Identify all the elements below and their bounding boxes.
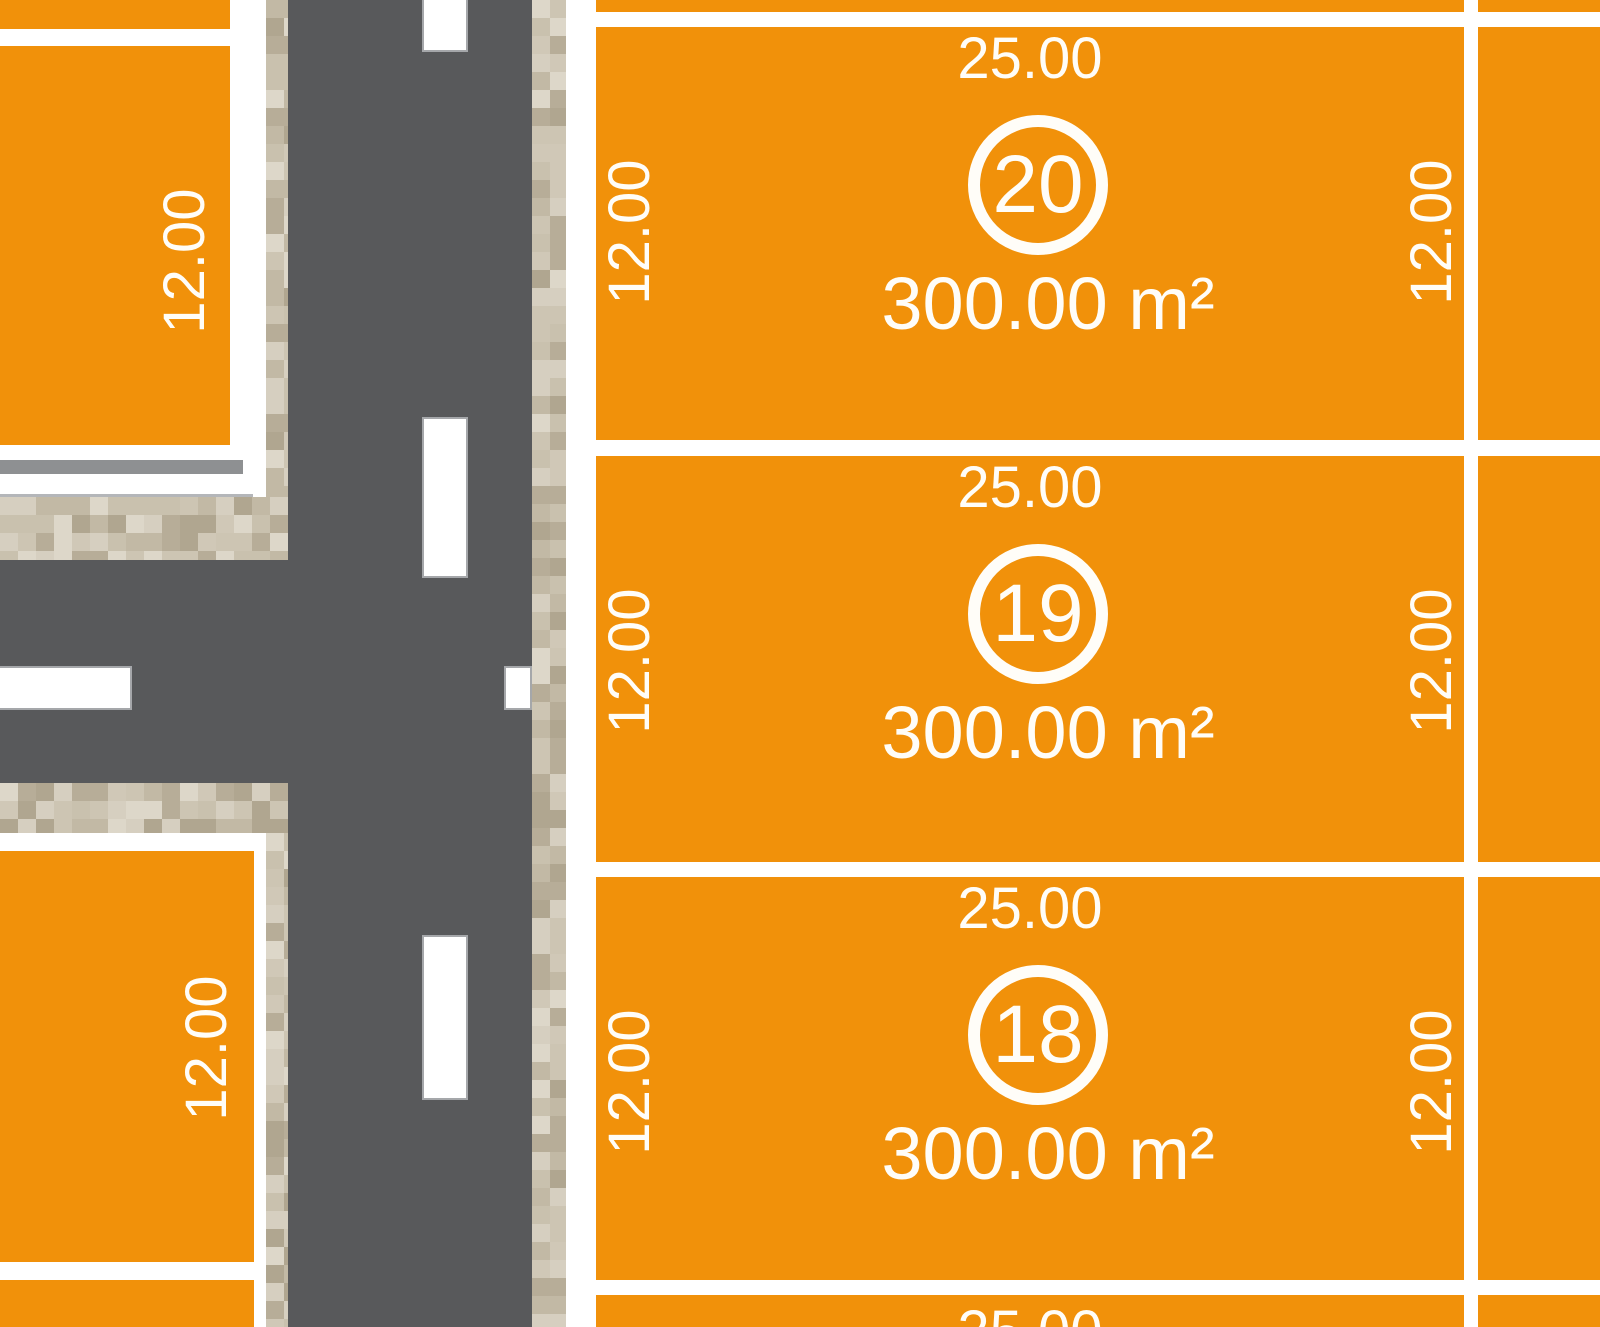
plot-18-number-badge: 18 <box>968 965 1108 1105</box>
road-vertical <box>288 0 532 1327</box>
sidewalk-texture <box>0 497 288 560</box>
plot-left-lower-depth-label: 12.00 <box>178 976 236 1121</box>
plot-right-row2-partial[interactable] <box>1478 456 1600 862</box>
plot-19[interactable]: 25.00 19 300.00 m² 12.00 12.00 <box>596 456 1464 862</box>
plot-19-number-badge: 19 <box>968 544 1108 684</box>
sidewalk-texture <box>266 0 288 497</box>
plot-20-area-label: 300.00 m² <box>881 267 1214 341</box>
sidewalk-band-lower <box>0 783 288 833</box>
plot-20-number-badge: 20 <box>968 115 1108 255</box>
plot-18-frontage-label: 25.00 <box>957 880 1102 938</box>
plot-right-top-sliver[interactable] <box>1478 0 1600 12</box>
plot-left-top-sliver[interactable] <box>0 0 230 29</box>
plot-19-number: 19 <box>992 573 1083 655</box>
lane-marking-dash-top <box>422 0 468 52</box>
plot-right-bottom-partial[interactable] <box>1478 1295 1600 1327</box>
plot-bottom-partial-frontage-label: 25.00 <box>957 1303 1102 1327</box>
sidewalk-texture <box>266 833 288 1327</box>
plot-18-area-label: 300.00 m² <box>881 1117 1214 1191</box>
plot-20-frontage-label: 25.00 <box>957 30 1102 88</box>
plot-18[interactable]: 25.00 18 300.00 m² 12.00 12.00 <box>596 877 1464 1280</box>
site-plan-map: 12.00 12.00 25.00 20 300.00 m² 12.00 12.… <box>0 0 1600 1327</box>
plot-left-bottom-partial[interactable] <box>0 1280 254 1327</box>
plot-left-upper[interactable]: 12.00 <box>0 46 230 445</box>
plot-20-depth-right-label: 12.00 <box>1403 159 1461 304</box>
sidewalk-texture <box>0 783 288 833</box>
plot-right-row1-partial[interactable] <box>1478 27 1600 440</box>
plot-main-bottom-partial[interactable]: 25.00 <box>596 1295 1464 1327</box>
plot-18-depth-left-label: 12.00 <box>601 1009 659 1154</box>
plot-18-number: 18 <box>992 994 1083 1076</box>
plot-18-depth-right-label: 12.00 <box>1403 1009 1461 1154</box>
plot-left-lower[interactable]: 12.00 <box>0 851 254 1262</box>
sidewalk-strip-left-upper <box>266 0 288 497</box>
plot-19-depth-right-label: 12.00 <box>1403 588 1461 733</box>
lane-marking-dash-lower <box>422 935 468 1100</box>
sidewalk-band-upper <box>0 497 288 560</box>
plot-20[interactable]: 25.00 20 300.00 m² 12.00 12.00 <box>596 27 1464 440</box>
sidewalk-strip-left-lower <box>266 833 288 1327</box>
plot-19-depth-left-label: 12.00 <box>601 588 659 733</box>
plot-right-row3-partial[interactable] <box>1478 877 1600 1280</box>
plot-20-number: 20 <box>992 144 1083 226</box>
plot-boundary-wall <box>0 460 243 474</box>
sidewalk-strip-right <box>532 0 566 1327</box>
plot-boundary-line <box>0 494 253 497</box>
lane-marking-dash-west <box>0 666 132 710</box>
lane-marking-dash-junction <box>504 666 532 710</box>
lane-marking-dash-middle <box>422 417 468 578</box>
plot-20-depth-left-label: 12.00 <box>601 159 659 304</box>
plot-19-frontage-label: 25.00 <box>957 459 1102 517</box>
plot-19-area-label: 300.00 m² <box>881 696 1214 770</box>
plot-main-top-sliver[interactable] <box>596 0 1464 12</box>
plot-left-upper-depth-label: 12.00 <box>156 189 214 334</box>
sidewalk-texture <box>532 0 566 1327</box>
